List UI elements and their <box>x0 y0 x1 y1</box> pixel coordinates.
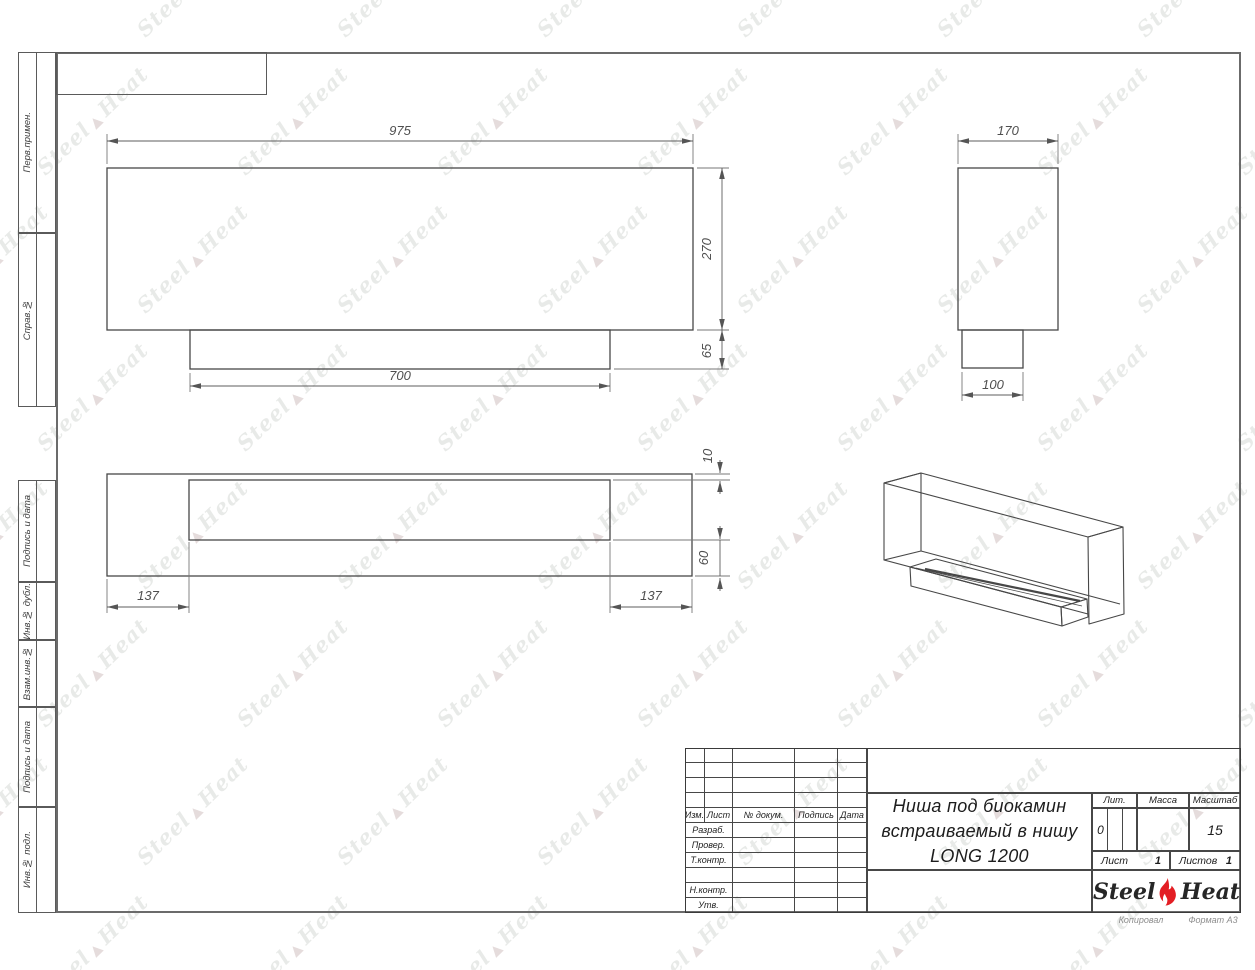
side-view: 170 100 <box>958 123 1058 401</box>
sign-cell <box>838 883 867 898</box>
sign-cell <box>838 898 867 913</box>
dim-side-depth: 170 <box>997 123 1019 138</box>
strip-label-text: Инв.№ подл. <box>22 831 33 888</box>
lit-divider <box>1122 809 1123 850</box>
dim-front-width: 975 <box>389 123 411 138</box>
col-header-list: Лист <box>705 808 733 823</box>
col-header-izm: Изм. <box>685 808 705 823</box>
row-label-utv: Утв. <box>685 898 733 913</box>
strip-label-cell: Инв.№ дубл. <box>19 583 37 639</box>
rev-cell <box>733 793 795 808</box>
side-view-base <box>962 330 1023 368</box>
rev-cell <box>838 748 867 763</box>
lit-header: Лит. <box>1092 793 1137 808</box>
strip-perv-primen: Перв.примен. <box>18 52 56 233</box>
row-label-razrab: Разраб. <box>685 823 733 838</box>
sign-cell <box>795 838 838 853</box>
strip-sprav-no: Справ.№ <box>18 233 56 407</box>
sign-cell <box>733 853 795 868</box>
rev-cell <box>705 778 733 793</box>
rev-cell <box>705 748 733 763</box>
row-label-prover: Провер. <box>685 838 733 853</box>
rev-cell <box>733 748 795 763</box>
sign-cell <box>733 823 795 838</box>
sign-cell <box>795 898 838 913</box>
title-block-left-table: Изм. Лист № докум. Подпись Дата Разраб. … <box>685 748 867 913</box>
sheet-cell: Лист 1 <box>1092 851 1170 870</box>
title-line-1: Ниша под биокамин <box>893 794 1067 819</box>
dim-top-back: 60 <box>696 550 711 565</box>
sign-cell <box>733 868 795 883</box>
top-view-body <box>107 474 692 576</box>
sign-cell <box>795 883 838 898</box>
strip-vzam-inv: Взам.инв.№ <box>18 640 56 707</box>
side-view-body <box>958 168 1058 330</box>
title-line-3: LONG 1200 <box>930 844 1029 869</box>
document-title: Ниша под биокамин встраиваемый в нишу LO… <box>867 793 1092 870</box>
scale-value-cell: 15 <box>1189 808 1241 851</box>
lit-value: 0 <box>1093 809 1108 850</box>
strip-label-cell: Подпись и дата <box>19 481 37 581</box>
org-cell <box>867 870 1092 913</box>
sheets-cell: Листов 1 <box>1170 851 1241 870</box>
sign-cell <box>838 853 867 868</box>
strip-label-cell: Перв.примен. <box>19 53 37 232</box>
logo-heat-text: Heat <box>1181 879 1240 905</box>
sheets-label: Листов <box>1179 855 1217 867</box>
rev-cell <box>795 763 838 778</box>
sign-cell <box>795 823 838 838</box>
rev-cell <box>705 763 733 778</box>
sign-cell <box>733 883 795 898</box>
dim-base-width: 700 <box>389 368 411 383</box>
strip-label-text: Перв.примен. <box>22 112 33 173</box>
top-left-stamp <box>56 52 267 95</box>
sheet-value: 1 <box>1155 855 1161 867</box>
strip-label-text: Подпись и дата <box>22 495 33 567</box>
sign-cell <box>838 838 867 853</box>
row-blank <box>685 868 733 883</box>
drawing-sheet: Steel▲HeatSteel▲HeatSteel▲HeatSteel▲Heat… <box>0 0 1255 970</box>
rev-cell <box>685 748 705 763</box>
col-header-data: Дата <box>838 808 867 823</box>
copied-note: Копировал <box>1095 915 1187 925</box>
sheets-value: 1 <box>1226 855 1232 867</box>
dim-front-height: 270 <box>699 237 714 260</box>
sign-cell <box>838 868 867 883</box>
dim-top-lip: 10 <box>700 448 715 463</box>
strip-podpis-data-2: Подпись и дата <box>18 707 56 807</box>
strip-inv-podl: Инв.№ подл. <box>18 807 56 913</box>
logo-steel-text: Steel <box>1093 879 1155 905</box>
front-view: 975 270 65 700 <box>107 123 729 392</box>
iso-view <box>884 473 1124 626</box>
rev-cell <box>838 763 867 778</box>
row-label-tkontr: Т.контр. <box>685 853 733 868</box>
col-header-docnum: № докум. <box>733 808 795 823</box>
dim-top-margin-left: 137 <box>137 588 159 603</box>
strip-label-text: Справ.№ <box>22 299 33 340</box>
top-view-slot <box>189 480 610 540</box>
strip-label-text: Подпись и дата <box>22 721 33 793</box>
sign-cell <box>733 838 795 853</box>
rev-cell <box>838 778 867 793</box>
dim-side-base-depth: 100 <box>982 377 1004 392</box>
scale-header: Масштаб <box>1189 793 1241 808</box>
flame-icon <box>1157 877 1178 907</box>
front-view-base <box>190 330 610 369</box>
strip-label-text: Взам.инв.№ <box>22 646 33 700</box>
sign-cell <box>838 823 867 838</box>
rev-cell <box>733 778 795 793</box>
rev-cell <box>795 778 838 793</box>
rev-cell <box>795 748 838 763</box>
strip-label-cell: Подпись и дата <box>19 708 37 806</box>
sign-cell <box>733 898 795 913</box>
sheet-label: Лист <box>1101 855 1128 867</box>
mass-value-cell <box>1137 808 1189 851</box>
dim-top-margin-right: 137 <box>640 588 662 603</box>
lit-value-cell: 0 <box>1092 808 1137 851</box>
rev-cell <box>685 793 705 808</box>
rev-cell <box>685 778 705 793</box>
title-line-2: встраиваемый в нишу <box>881 819 1077 844</box>
row-label-nkontr: Н.контр. <box>685 883 733 898</box>
designation-cell <box>867 748 1241 793</box>
sign-cell <box>795 868 838 883</box>
strip-podpis-data-1: Подпись и дата <box>18 480 56 582</box>
top-view: 137 137 10 60 <box>107 448 730 613</box>
dim-base-height: 65 <box>699 343 714 358</box>
rev-cell <box>838 793 867 808</box>
format-note: Формат А3 <box>1182 915 1244 925</box>
mass-header: Масса <box>1137 793 1189 808</box>
front-view-body <box>107 168 693 330</box>
rev-cell <box>733 763 795 778</box>
strip-label-text: Инв.№ дубл. <box>22 583 33 640</box>
strip-inv-dubl: Инв.№ дубл. <box>18 582 56 640</box>
strip-label-cell: Инв.№ подл. <box>19 808 37 912</box>
strip-label-cell: Взам.инв.№ <box>19 641 37 706</box>
sign-cell <box>795 853 838 868</box>
col-header-podpis: Подпись <box>795 808 838 823</box>
rev-cell <box>705 793 733 808</box>
strip-label-cell: Справ.№ <box>19 234 37 406</box>
rev-cell <box>685 763 705 778</box>
rev-cell <box>795 793 838 808</box>
company-logo: Steel Heat <box>1092 870 1241 913</box>
